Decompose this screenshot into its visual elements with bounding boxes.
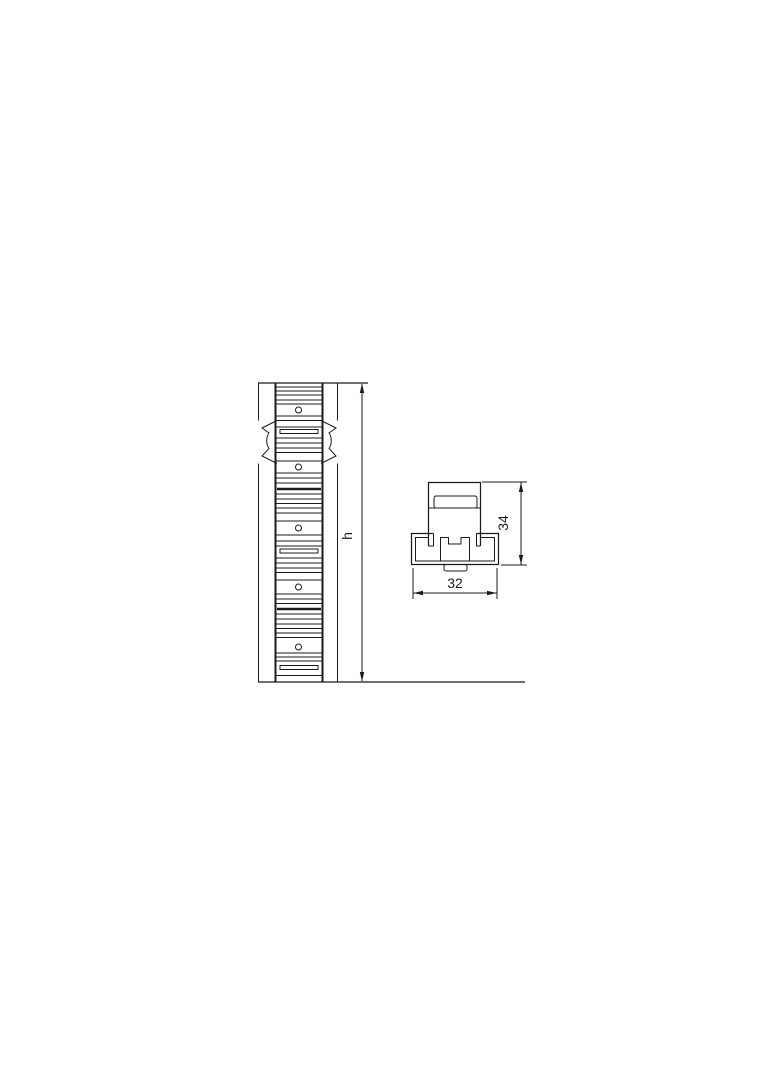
dimension-label-34: 34 xyxy=(495,515,511,531)
drawing-canvas: h 34 32 xyxy=(0,0,784,1066)
technical-drawing: h 34 32 xyxy=(0,0,784,1066)
canvas-background xyxy=(0,0,784,1066)
dimension-label-32: 32 xyxy=(447,575,463,591)
dimension-label-h: h xyxy=(339,532,355,540)
